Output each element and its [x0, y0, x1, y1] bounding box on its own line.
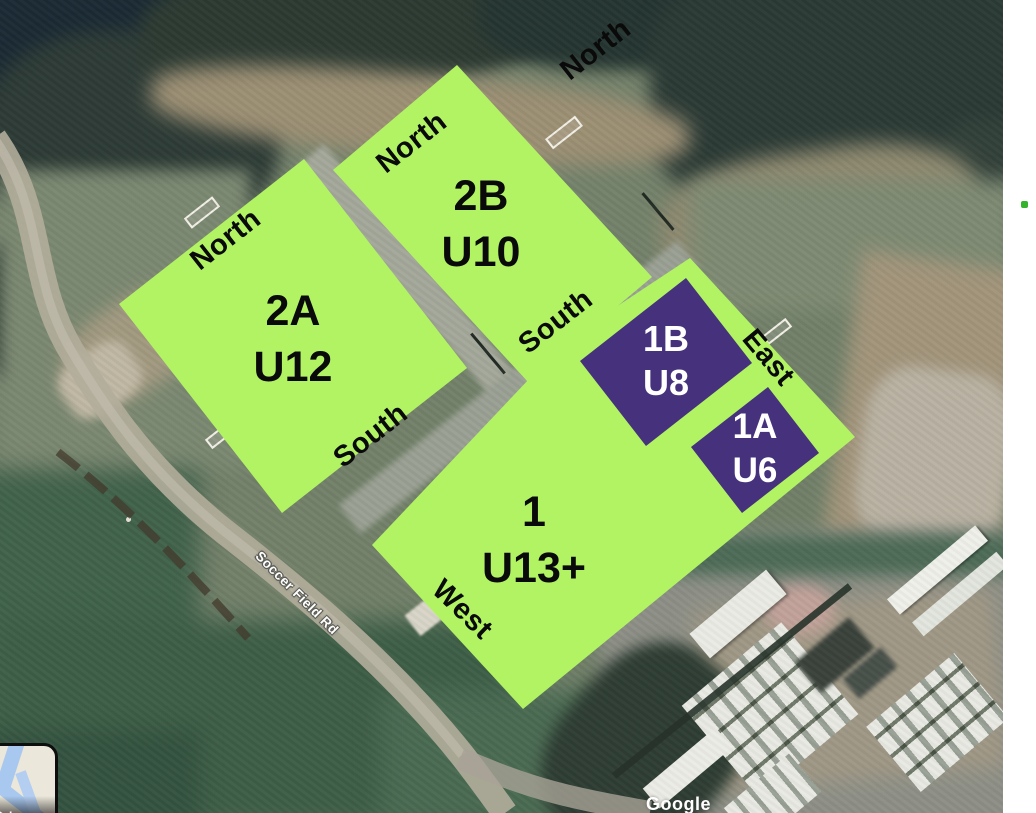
field-1a-age: U6	[733, 449, 778, 493]
field-2b-name: 2B	[442, 168, 521, 224]
field-2a-name: 2A	[254, 283, 333, 339]
field-1b-age: U8	[643, 361, 689, 405]
field-1-label: 1 U13+	[482, 484, 586, 596]
field-1-age: U13+	[482, 540, 586, 596]
field-1b-label: 1B U8	[643, 317, 689, 405]
field-1b-name: 1B	[643, 317, 689, 361]
field-1-name: 1	[482, 484, 586, 540]
layers-control[interactable]: Layers	[0, 743, 58, 813]
green-dot-marker	[1021, 201, 1028, 208]
field-2b-label: 2B U10	[442, 168, 521, 280]
layers-icon	[0, 810, 6, 813]
field-1a-name: 1A	[733, 405, 778, 449]
page-margin	[1003, 0, 1036, 813]
field-overlays	[0, 0, 1003, 813]
screenshot-root: 2A U12 2B U10 1 U13+ 1B U8 1A U6 North S…	[0, 0, 1036, 813]
field-2a-age: U12	[254, 339, 333, 395]
field-2b-age: U10	[442, 224, 521, 280]
field-2a-label: 2A U12	[254, 283, 333, 395]
field-1a-label: 1A U6	[733, 405, 778, 493]
satellite-map[interactable]: 2A U12 2B U10 1 U13+ 1B U8 1A U6 North S…	[0, 0, 1003, 813]
layers-label: Layers	[9, 809, 48, 813]
google-watermark[interactable]: Google	[646, 794, 711, 813]
tree-line	[614, 586, 850, 776]
